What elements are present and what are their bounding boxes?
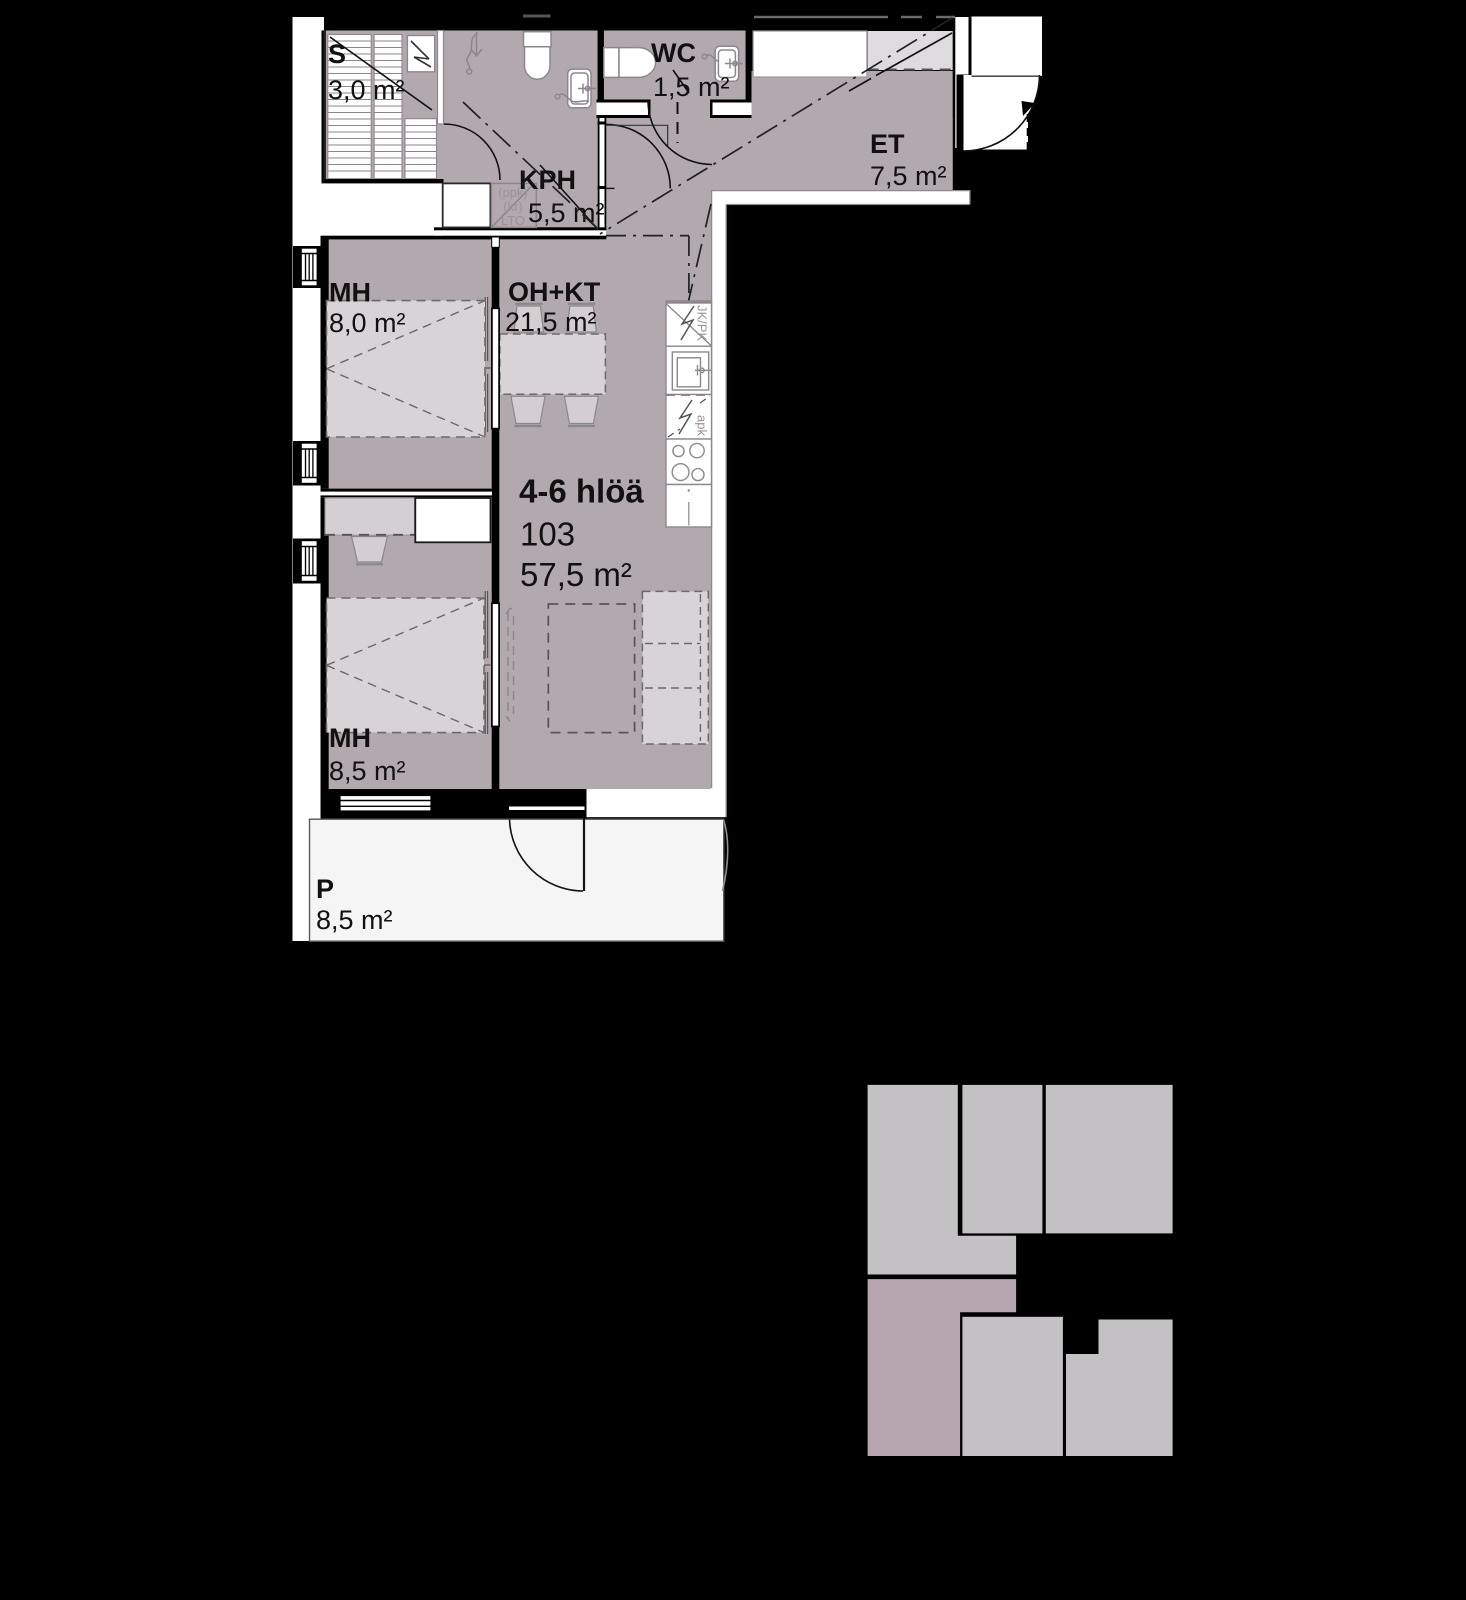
svg-text:WC: WC [651,38,696,68]
svg-text:apk: apk [695,415,710,436]
svg-text:8,0 m²: 8,0 m² [329,308,406,338]
svg-text:KPH: KPH [519,165,576,195]
svg-text:3,0 m²: 3,0 m² [328,75,405,105]
svg-text:57,5 m²: 57,5 m² [520,556,632,593]
svg-text:8,5 m²: 8,5 m² [329,756,406,786]
svg-text:8,5 m²: 8,5 m² [316,905,393,935]
svg-text:ET: ET [870,129,905,159]
svg-text:MH: MH [329,723,371,753]
svg-text:S: S [328,39,346,69]
svg-text:P: P [316,874,334,904]
svg-text:7,5 m²: 7,5 m² [870,161,947,191]
svg-text:OH+KT: OH+KT [508,277,601,307]
svg-text:LTO: LTO [501,213,525,228]
svg-text:1,5 m²: 1,5 m² [653,72,730,102]
svg-text:(kr): (kr) [503,199,523,214]
svg-text:103: 103 [520,516,575,553]
svg-text:21,5 m²: 21,5 m² [505,307,597,337]
svg-text:MH: MH [329,278,371,308]
svg-text:4-6 hlöä: 4-6 hlöä [519,473,644,510]
svg-text:JK/PK: JK/PK [695,305,710,341]
